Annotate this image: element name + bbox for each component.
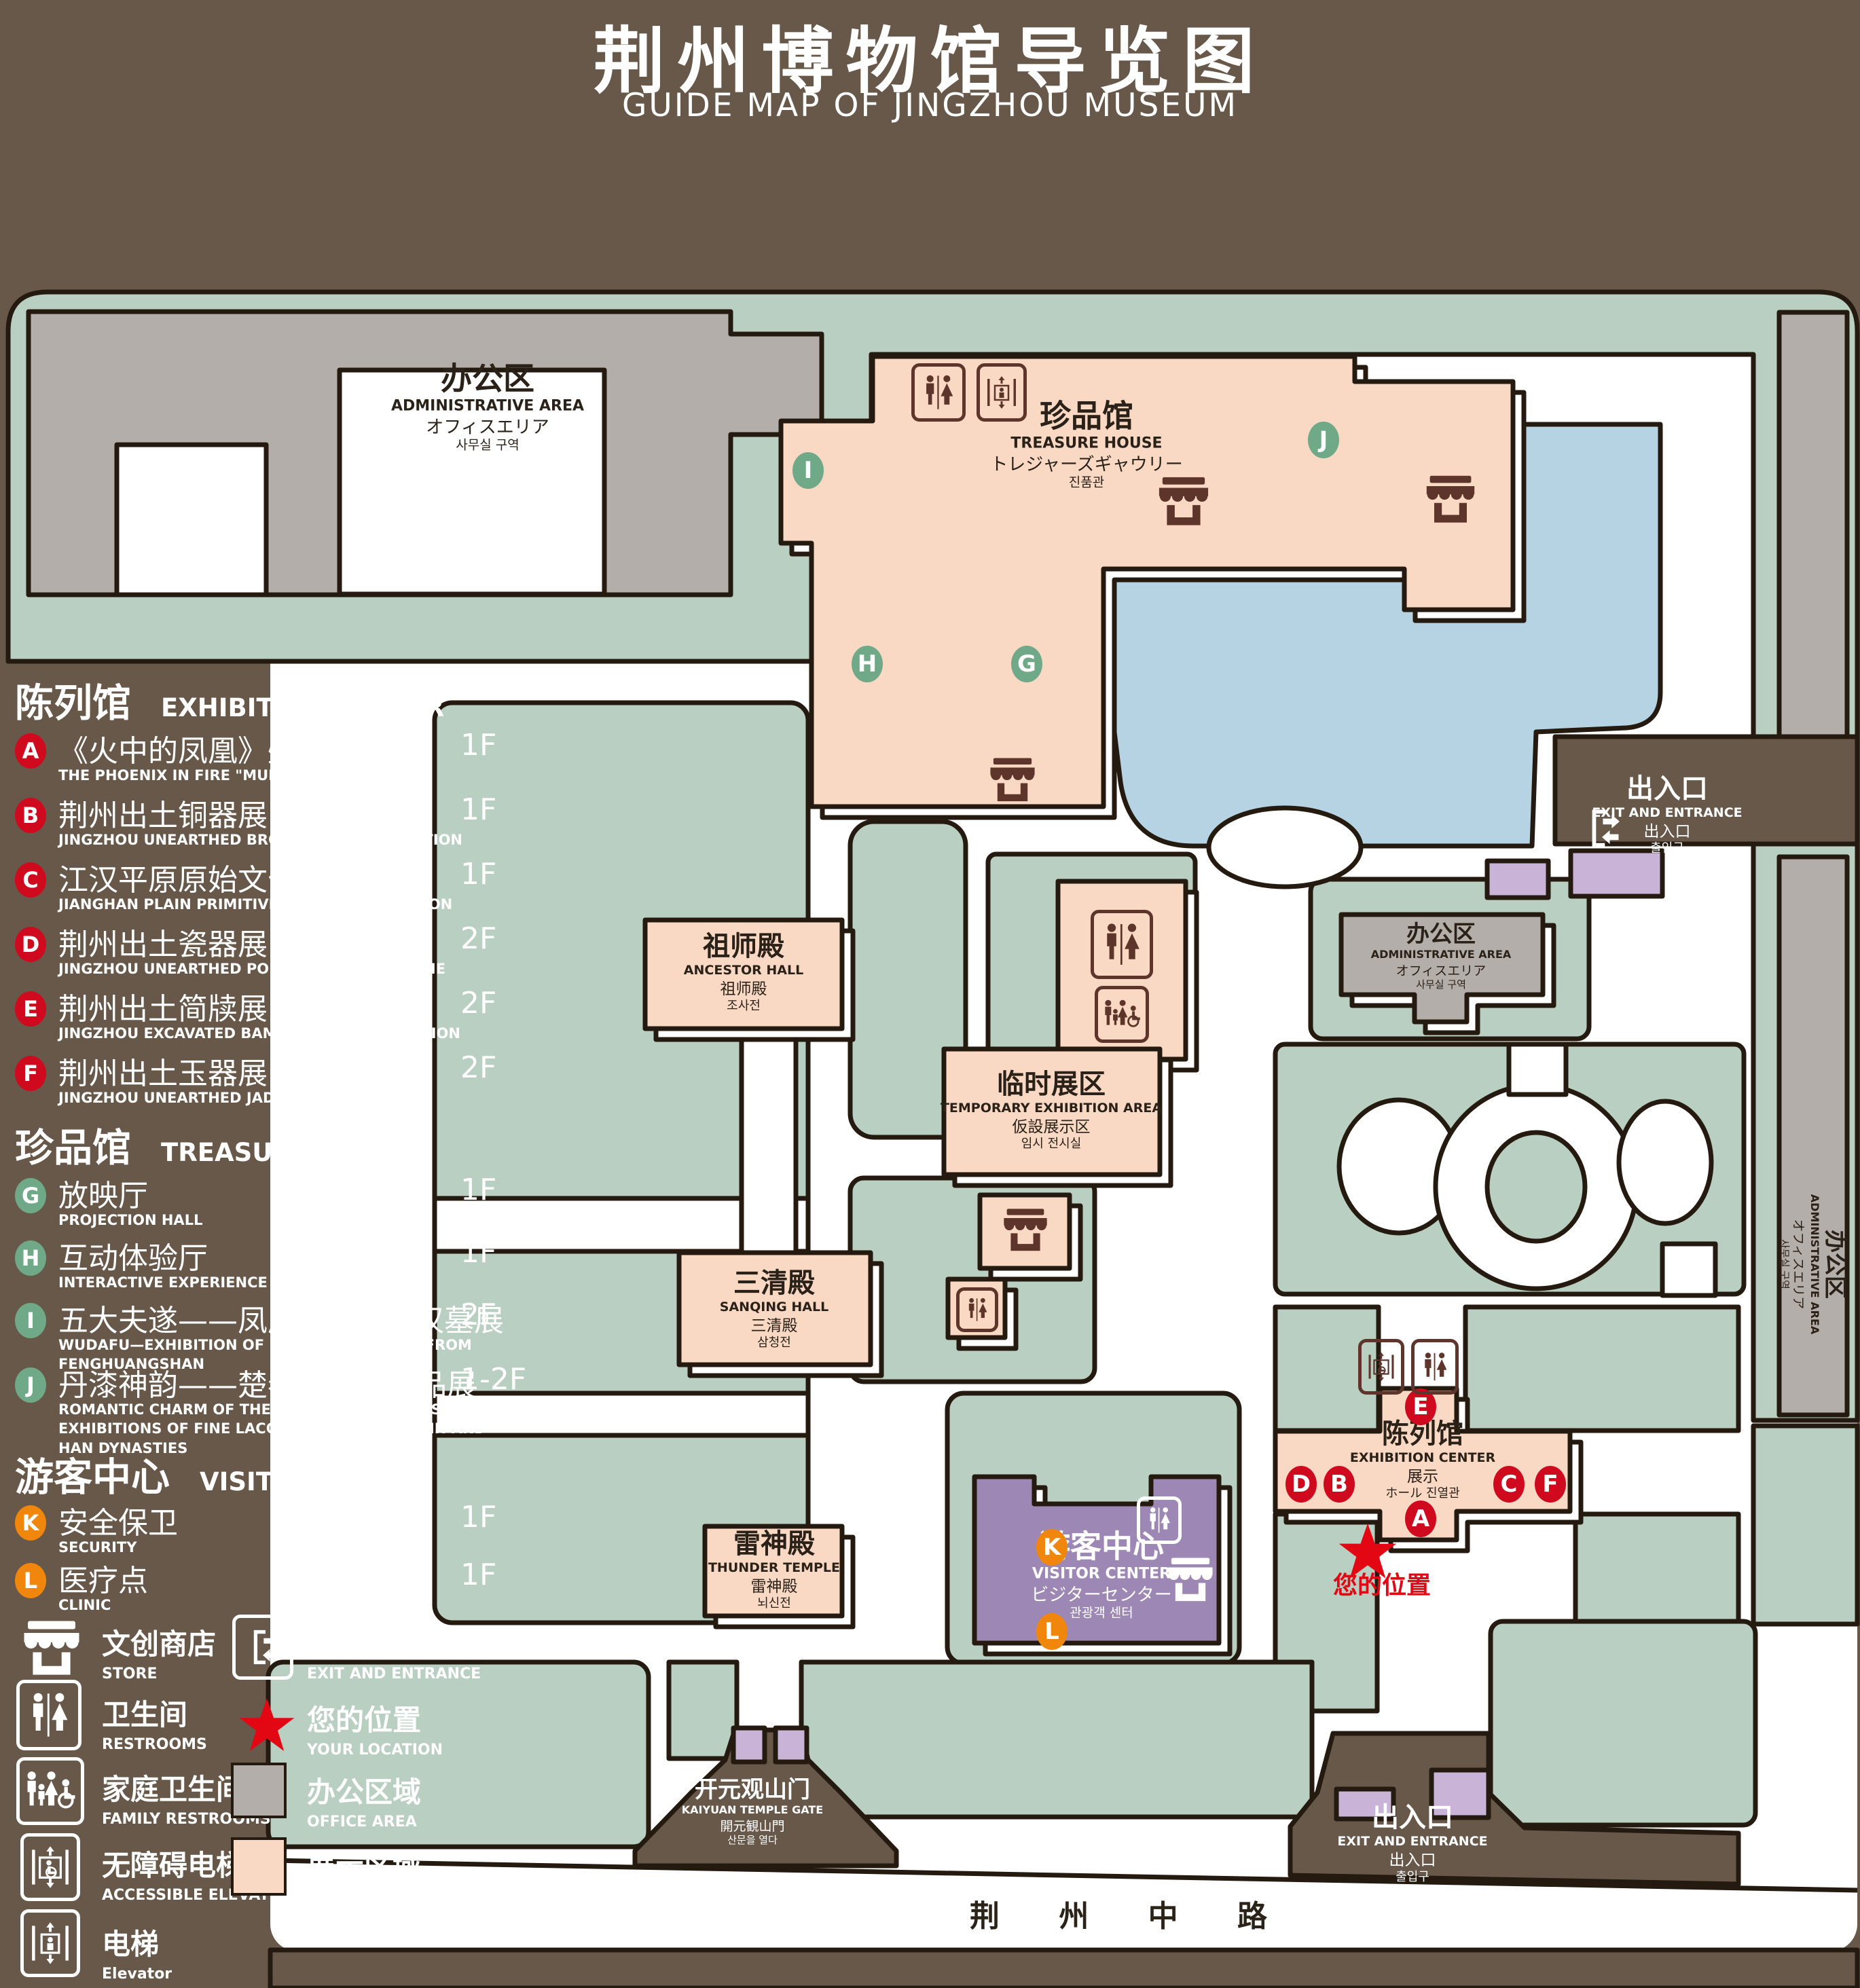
item-subtitle: JINGZHOU EXCAVATED BAMBOO SLIPS EXHIBITI… (58, 1024, 507, 1043)
lawn-south (801, 1662, 1312, 1817)
gate-pavilion (776, 1728, 807, 1762)
legend-section-exhibition: 陈列馆EXHIBITION CENTER (15, 672, 444, 728)
label-line: 办公区 (1371, 921, 1512, 947)
label-line: 진품관 (990, 476, 1182, 490)
symbol-title: 卫生间 (102, 1692, 207, 1733)
item-title: 荆州出土简牍展 (58, 984, 268, 1028)
item-title: 丹漆神韵——楚秦汉漆器精品展 (58, 1361, 477, 1404)
label-line: 출입구 (1337, 1871, 1487, 1884)
label-sanqing-hall: 三清殿 SANQING HALL 三清殿 삼청전 (720, 1268, 828, 1350)
map-marker-J: J (1308, 422, 1339, 458)
walkway (742, 1032, 796, 1256)
label-kaiyuan-gate: 开元观山门 KAIYUAN TEMPLE GATE 開元観山門 산문을 열다 (682, 1777, 823, 1846)
symbol-title: 出入口 (307, 1621, 481, 1663)
label-line: 사무실 구역 (391, 439, 584, 453)
accessible-elevator-icon (1358, 1339, 1404, 1395)
section-title-en: TREASURE HOUSE (161, 1138, 416, 1167)
marker-K: K (15, 1505, 46, 1541)
road-label: 荆 州 中 路 (970, 1892, 1292, 1935)
symbol-subtitle: Elevator (102, 1966, 172, 1983)
marker-F: F (15, 1056, 46, 1091)
garden-island (1487, 1133, 1585, 1241)
label-line: KAIYUAN TEMPLE GATE (682, 1804, 823, 1816)
exit-icon (1577, 804, 1627, 853)
label-line: トレジャーズギャウリー (990, 456, 1182, 475)
section-title-zh: 陈列馆 (15, 681, 131, 726)
item-subtitle: PROJECTION HALL (58, 1211, 507, 1230)
lawn-east-lower (1753, 1426, 1857, 1624)
location-star-icon (1336, 1522, 1399, 1582)
item-floor: 1F (460, 728, 496, 762)
symbol-title: 文创商店 (102, 1621, 216, 1663)
label-line: TEMPORARY EXHIBITION AREA (941, 1101, 1162, 1116)
marker-A: A (15, 733, 46, 769)
label-line: 雷神殿 (708, 1579, 840, 1596)
label-line: VISITOR CENTER (1031, 1566, 1171, 1583)
symbol-subtitle: STORE (102, 1665, 216, 1682)
road-south-side (270, 1950, 1857, 1988)
label-line: 办公区 (1822, 1194, 1848, 1335)
map-marker-L: L (1036, 1613, 1068, 1650)
legend-section-visitor: 游客中心VISITOR CENTER (15, 1446, 433, 1502)
label-line: EXIT AND ENTRANCE (1337, 1835, 1487, 1849)
item-title: 荆州出土铜器展 (58, 791, 268, 834)
item-floor: 1F (460, 1173, 496, 1207)
section-title-zh: 游客中心 (15, 1455, 170, 1500)
item-subtitle: JINGZHOU UNEARTHED BRONZE WARE EXHIBITIO… (58, 830, 507, 849)
label-line: ビジターセンター (1031, 1586, 1171, 1606)
label-ancestor-hall: 祖师殿 ANCESTOR HALL 祖师殿 조사전 (684, 932, 803, 1013)
map-marker-I: I (792, 452, 824, 489)
label-exit-south: 出入口 EXIT AND ENTRANCE 出入口 출입구 (1337, 1803, 1487, 1884)
label-line: ADMINISTRATIVE AREA (1808, 1194, 1821, 1335)
restroom-icon (911, 363, 966, 422)
label-line: 三清殿 (720, 1268, 828, 1299)
label-line: 祖师殿 (684, 932, 803, 962)
item-floor: 2F (460, 921, 496, 956)
marker-L: L (15, 1563, 46, 1598)
symbol-subtitle: EXIT AND ENTRANCE (307, 1665, 481, 1682)
restroom-icon (1411, 1339, 1459, 1395)
item-floor: 2F (460, 1050, 496, 1085)
label-line: 사무실 구역 (1779, 1194, 1790, 1335)
label-admin-strip: 办公区 ADMINISTRATIVE AREA オフィスエリア 사무실 구역 (1779, 1194, 1848, 1335)
item-subtitle: THE PHOENIX IN FIRE "MURAL PAINTING (58, 766, 507, 785)
marker-D: D (15, 927, 46, 962)
courtyard (117, 445, 266, 595)
office-area-swatch (231, 1763, 287, 1818)
garden-path (1662, 1244, 1715, 1295)
label-exhibition-center: 陈列馆 EXHIBITION CENTER 展示 ホール 진열관 (1350, 1419, 1495, 1501)
item-title: 江汉平原原始文化展 (58, 855, 327, 899)
label-line: 出入口 (1337, 1803, 1487, 1833)
label-line: SANQING HALL (720, 1300, 828, 1314)
symbol-title: 电梯 (102, 1921, 172, 1963)
item-title: 安全保卫 (58, 1498, 178, 1542)
symbol-title: 办公区域 (307, 1769, 421, 1811)
marker-G: G (15, 1178, 46, 1213)
label-line: オフィスエリア (391, 418, 584, 438)
item-title: 《火中的凤凰》壁画 (58, 726, 327, 770)
map-marker-B: B (1324, 1466, 1355, 1503)
label-line: オフィスエリア (1371, 964, 1512, 978)
marker-I: I (15, 1303, 46, 1338)
item-subtitle: JINGZHOU UNEARTHED JADE EXHIBITION (58, 1088, 507, 1107)
map-marker-K: K (1036, 1529, 1068, 1566)
lawn-southeast (1491, 1621, 1755, 1825)
store-icon (1001, 1206, 1050, 1255)
label-line: 祖师殿 (684, 981, 803, 999)
elevator-icon (977, 363, 1027, 422)
label-line: ADMINISTRATIVE AREA (1371, 949, 1512, 961)
map-marker-G: G (1011, 646, 1042, 682)
exit-icon (232, 1615, 293, 1680)
pond-shore (1209, 808, 1361, 887)
symbol-subtitle: DISPLAY AREA (307, 1888, 427, 1905)
store-icon (1423, 473, 1478, 527)
label-line: EXHIBITION CENTER (1350, 1451, 1495, 1465)
building-small-purple (1487, 861, 1548, 898)
label-line: オフィスエリア (1791, 1194, 1805, 1335)
label-line: 展示 (1350, 1469, 1495, 1486)
label-line: 开元观山门 (682, 1777, 823, 1803)
label-line: 临时展区 (941, 1069, 1162, 1100)
item-subtitle: INTERACTIVE EXPERIENCE HALL (58, 1273, 507, 1292)
marker-H: H (15, 1240, 46, 1276)
gate-pavilion (733, 1728, 765, 1762)
symbol-subtitle: RESTROOMS (102, 1736, 207, 1753)
restroom-icon (16, 1680, 81, 1750)
label-line: ANCESTOR HALL (684, 963, 803, 978)
location-star-icon (238, 1697, 296, 1754)
label-line: 雷神殿 (708, 1529, 840, 1560)
map-marker-A: A (1405, 1501, 1436, 1537)
label-line: 조사전 (684, 999, 803, 1013)
store-icon (1164, 1555, 1217, 1605)
label-admin-northwest: 办公区 ADMINISTRATIVE AREA オフィスエリア 사무실 구역 (391, 362, 584, 454)
marker-E: E (15, 991, 46, 1027)
symbol-subtitle: YOUR LOCATION (307, 1742, 443, 1759)
family-restroom-icon (1095, 986, 1149, 1043)
legend-symbol-store: 文创商店 STORE (102, 1621, 216, 1682)
restroom-icon (1137, 1496, 1182, 1544)
label-temporary-exhibition: 临时展区 TEMPORARY EXHIBITION AREA 仮設展示区 임시 … (941, 1069, 1162, 1151)
item-floor: 1-2F (460, 1362, 526, 1397)
label-line: 임시 전시실 (941, 1137, 1162, 1151)
legend-symbol-restrooms: 卫生间 RESTROOMS (102, 1692, 207, 1753)
section-title-zh: 珍品馆 (15, 1126, 131, 1171)
item-title: 荆州出土玉器展 (58, 1049, 268, 1092)
item-subtitle: JIANGHAN PLAIN PRIMITIVE CULTURE EXHIBIT… (58, 895, 507, 914)
marker-B: B (15, 798, 46, 833)
legend-section-treasure: 珍品馆TREASURE HOUSE (15, 1117, 416, 1173)
item-floor: 1F (460, 857, 496, 891)
section-title-en: EXHIBITION CENTER (161, 693, 444, 722)
family-restroom-icon (16, 1757, 84, 1825)
label-line: THUNDER TEMPLE (708, 1561, 840, 1575)
label-line: 開元観山門 (682, 1820, 823, 1834)
label-thunder-temple: 雷神殿 THUNDER TEMPLE 雷神殿 뇌신전 (708, 1529, 840, 1610)
marker-J: J (15, 1367, 46, 1403)
label-line: ADMINISTRATIVE AREA (391, 398, 584, 415)
label-line: 办公区 (391, 362, 584, 397)
lawn (1465, 1307, 1738, 1431)
label-line: 뇌신전 (708, 1597, 840, 1610)
elevator-icon (20, 1909, 80, 1977)
garden-path (1619, 1101, 1711, 1223)
map-marker-F: F (1535, 1466, 1566, 1503)
label-line: TREASURE HOUSE (990, 435, 1182, 452)
building-admin-strip-upper (1779, 312, 1847, 737)
item-floor: 1F (460, 1235, 496, 1270)
item-floor: 1F (460, 792, 496, 827)
item-floor: 2F (460, 1297, 496, 1332)
label-admin-right: 办公区 ADMINISTRATIVE AREA オフィスエリア 사무실 구역 (1371, 921, 1512, 991)
marker-C: C (15, 862, 46, 898)
item-subtitle: JINGZHOU UNEARTHED PORCELAIN EXHIBITIONE (58, 959, 507, 978)
building-small-purple (1571, 851, 1662, 896)
restroom-icon (1091, 910, 1153, 979)
item-title: 医疗点 (58, 1556, 148, 1600)
store-icon (1156, 474, 1211, 530)
item-floor: 1F (460, 1558, 496, 1592)
section-title-en: VISITOR CENTER (200, 1467, 433, 1496)
item-title: 荆州出土瓷器展 (58, 920, 268, 963)
lawn (669, 1662, 737, 1759)
museum-map (0, 0, 1860, 1988)
item-title: 互动体验厅 (58, 1234, 208, 1277)
legend-symbol-your-location: 您的位置 YOUR LOCATION (307, 1697, 443, 1759)
legend-symbol-office-area: 办公区域 OFFICE AREA (307, 1769, 421, 1830)
label-line: 삼청전 (720, 1336, 828, 1350)
map-marker-D: D (1285, 1466, 1317, 1503)
display-area-swatch (231, 1837, 287, 1896)
label-line: 出入口 (1337, 1852, 1487, 1870)
symbol-title: 您的位置 (307, 1697, 443, 1739)
label-line: 산문을 열다 (682, 1835, 823, 1846)
item-floor: 1F (460, 1500, 496, 1534)
item-subtitle: SECURITY (58, 1538, 507, 1557)
label-line: 三清殿 (720, 1318, 828, 1336)
map-marker-H: H (852, 646, 883, 682)
legend-symbol-exit: 出入口 EXIT AND ENTRANCE (307, 1621, 481, 1682)
garden-path (1509, 1044, 1566, 1094)
label-line: ホール 진열관 (1350, 1487, 1495, 1501)
label-line: 仮設展示区 (941, 1119, 1162, 1137)
item-title: 放映厅 (58, 1171, 148, 1215)
item-title: 五大夫遂——凤凰山168号汉墓展 (58, 1296, 504, 1340)
store-icon (987, 755, 1038, 805)
map-marker-C: C (1493, 1466, 1525, 1503)
item-subtitle: CLINIC (58, 1596, 507, 1615)
store-icon (19, 1617, 84, 1680)
restroom-icon (956, 1287, 998, 1332)
accessible-elevator-icon (20, 1833, 80, 1901)
legend-symbol-display-area: 展示区域 DISPLAY AREA (307, 1844, 427, 1905)
label-line: 出入口 (1592, 774, 1742, 805)
symbol-subtitle: OFFICE AREA (307, 1814, 421, 1830)
legend-symbol-elevator: 电梯 Elevator (102, 1921, 172, 1983)
symbol-title: 展示区域 (307, 1844, 427, 1885)
label-line: 사무실 구역 (1371, 979, 1512, 991)
item-floor: 2F (460, 986, 496, 1020)
